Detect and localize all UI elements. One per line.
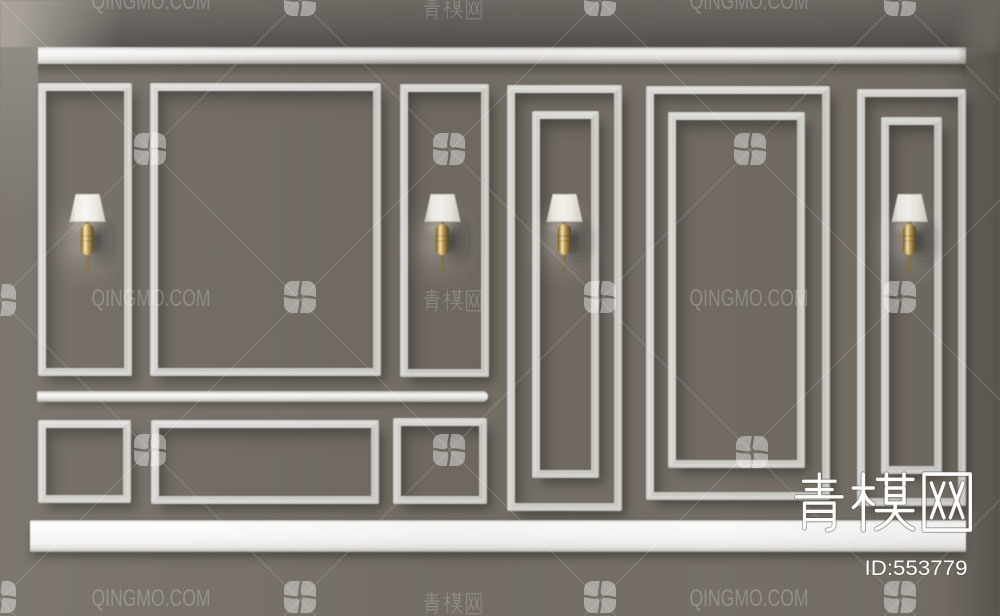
svg-text:QINGMO.COM: QINGMO.COM <box>690 585 809 612</box>
svg-text:ID:553779: ID:553779 <box>865 556 968 580</box>
svg-text:QINGMO.COM: QINGMO.COM <box>92 585 211 612</box>
svg-text:QINGMO.COM: QINGMO.COM <box>690 285 809 312</box>
svg-text:QINGMO.COM: QINGMO.COM <box>690 0 809 15</box>
svg-text:QINGMO.COM: QINGMO.COM <box>92 285 211 312</box>
svg-text:QINGMO.COM: QINGMO.COM <box>92 0 211 15</box>
